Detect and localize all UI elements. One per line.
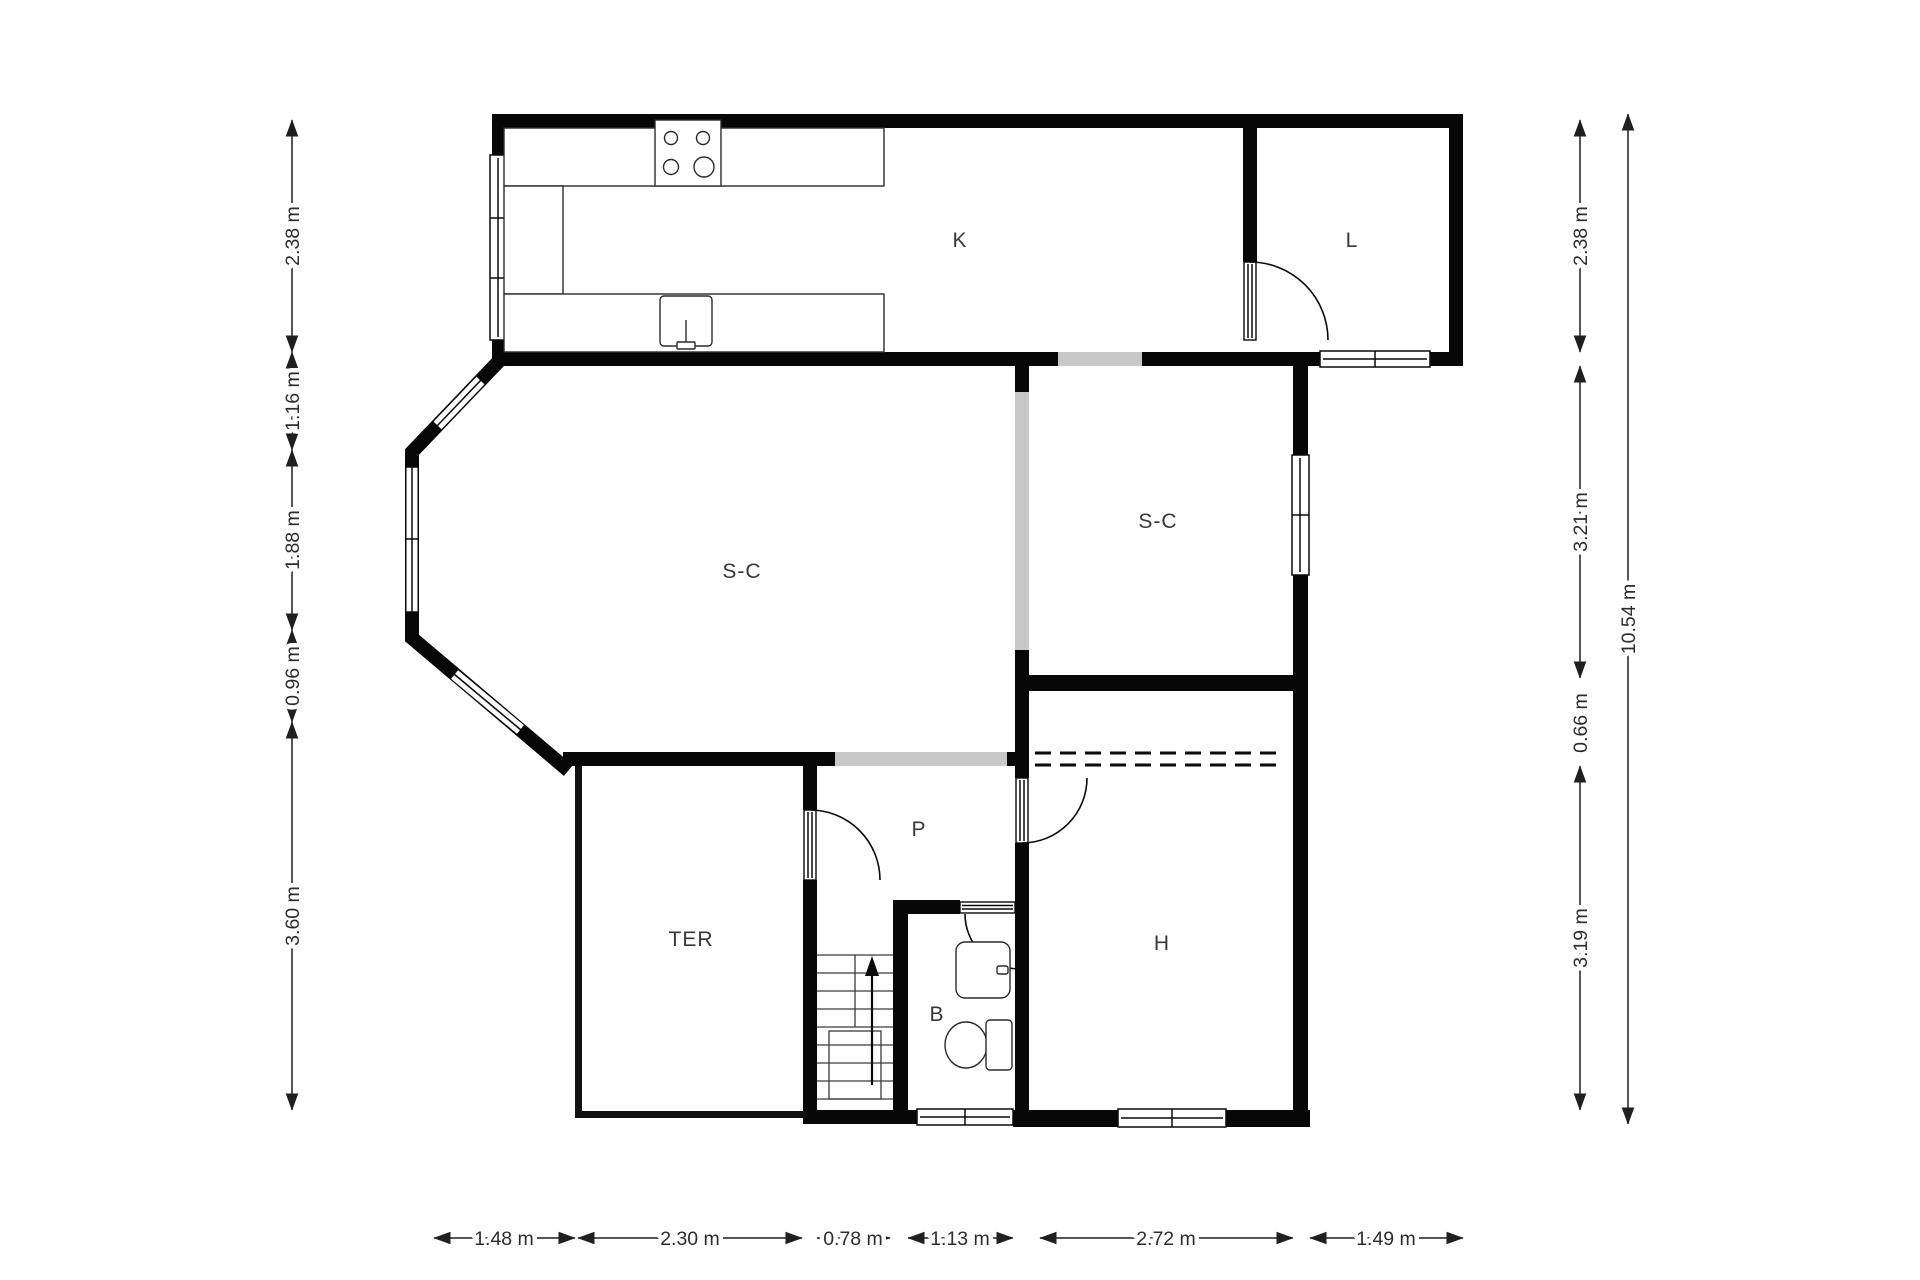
wall-south-h [1226,1110,1310,1127]
toilet-icon [945,1020,1012,1070]
dim-left-3: 1.88 m [282,510,304,570]
wardrobe-dashed-lines [1035,753,1285,765]
dimensions-left: 2.38 m 1.16 m 1.88 m 0.96 m 3.60 m [282,120,304,1110]
floor-plan-page: K L S-C S-C P TER B H 2.38 m 1.16 m 1.88… [0,0,1920,1280]
parapet-ter-west [575,766,582,1118]
room-label-bathroom: B [929,1003,944,1026]
wall-east-lower [1293,575,1308,1127]
wall-laundry-south-corner [1430,352,1463,366]
opening-kitchen-to-sc [1058,352,1142,366]
dim-left-4: 0.96 m [282,646,304,706]
wall-stairs-west-upper [803,766,817,810]
wall-b-north-left [893,900,960,914]
dim-bottom-6: 1.49 m [1356,1228,1416,1250]
bathroom-fixtures [945,942,1012,1070]
wall-east-top-block [1449,114,1463,366]
dim-left-2: 1.16 m [282,371,304,431]
dim-left-1: 2.38 m [282,206,304,266]
stove-icon [655,120,721,186]
wall-sc-right-south [1015,675,1305,691]
door-laundry-icon [1244,262,1328,340]
dimensions-bottom: 1.48 m 2.30 m 0.78 m 1.13 m 2.72 m 1.49 … [434,1228,1463,1250]
dim-bottom-1: 1.48 m [474,1228,534,1250]
wall-sc-divider-top-stub [1015,366,1029,392]
window-bay-upper-icon [433,376,486,430]
dim-bottom-3: 0.78 m [823,1228,883,1250]
wall-p-north [563,752,835,766]
wall-south-stairs [803,1110,917,1124]
room-label-kitchen: K [952,229,967,252]
window-laundry-south-icon [1320,351,1430,367]
kitchen-sink-icon [660,296,712,349]
window-bay-lower-icon [450,669,525,735]
stairs [817,955,893,1099]
window-h-south-icon [1118,1109,1226,1127]
wall-west-kitchen-upper [492,114,504,158]
window-sc-east-icon [1292,455,1309,575]
window-b-south-icon [917,1109,1013,1125]
room-label-terrace: TER [669,928,714,951]
kitchen-fixtures [504,120,884,352]
room-label-bedroom: H [1154,932,1170,955]
partition-sc-divider-glazed [1015,392,1029,650]
wall-kitchen-laundry-divider [1243,128,1257,262]
door-h-icon [1016,778,1087,843]
dim-right-3: 0.66 m [1570,693,1592,753]
wall-kitchen-south-right [1142,352,1320,366]
dimensions-right: 2.38 m 3.21 m 0.66 m 3.19 m [1570,120,1592,1110]
dim-right-4: 3.19 m [1570,908,1592,968]
dim-bottom-2: 2.30 m [660,1228,720,1250]
dim-bottom-4: 1.13 m [930,1228,990,1250]
dim-bottom-5: 2.72 m [1136,1228,1196,1250]
wall-p-north-tab [1007,752,1017,766]
wall-sc-divider-bottom [1015,650,1029,778]
window-bay-west-icon [405,467,419,612]
dim-right-1: 2.38 m [1570,206,1592,266]
wall-stairs-east [893,900,908,1124]
wall-b-h-divider [1015,843,1029,1124]
room-label-living-left: S-C [722,560,761,583]
doors [804,262,1328,969]
room-label-laundry: L [1346,229,1359,252]
wall-north [492,114,1463,128]
room-label-hall: P [911,818,926,841]
wall-east-sc-upper [1293,366,1308,455]
door-ter-icon [804,810,880,880]
exterior-walls [412,114,1463,1127]
room-label-living-right: S-C [1138,510,1177,533]
floor-plan-drawing: K L S-C S-C P TER B H 2.38 m 1.16 m 1.88… [0,0,1920,1280]
wall-stairs-west-lower [803,880,817,1124]
opening-sc-to-p [835,752,1007,766]
dimension-overall-height: 10.54 m [1618,114,1640,1124]
wall-kitchen-south-left [492,352,1058,366]
dim-left-5: 3.60 m [282,886,304,946]
wall-south-b-h [1013,1110,1118,1127]
parapet-ter-south [575,1111,807,1118]
dim-overall: 10.54 m [1618,584,1640,654]
stairs-direction-arrow-icon [865,956,879,1085]
washbasin-icon [956,942,1010,998]
dim-right-2: 3.21 m [1570,492,1592,552]
